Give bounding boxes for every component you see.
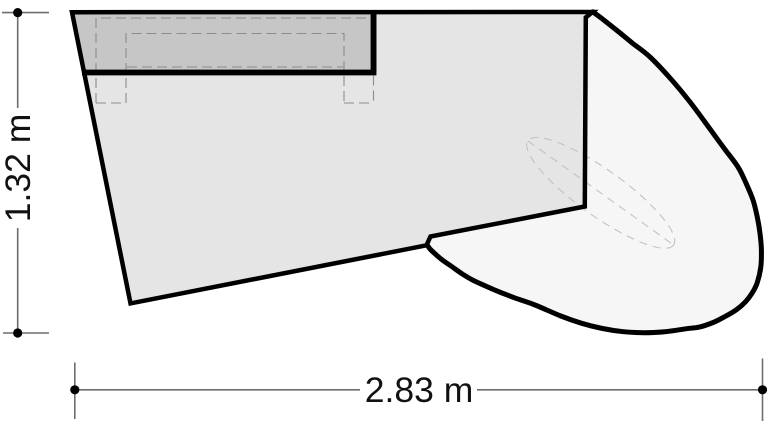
svg-text:1.32 m: 1.32 m: [0, 114, 38, 223]
svg-text:2.83 m: 2.83 m: [365, 370, 474, 410]
